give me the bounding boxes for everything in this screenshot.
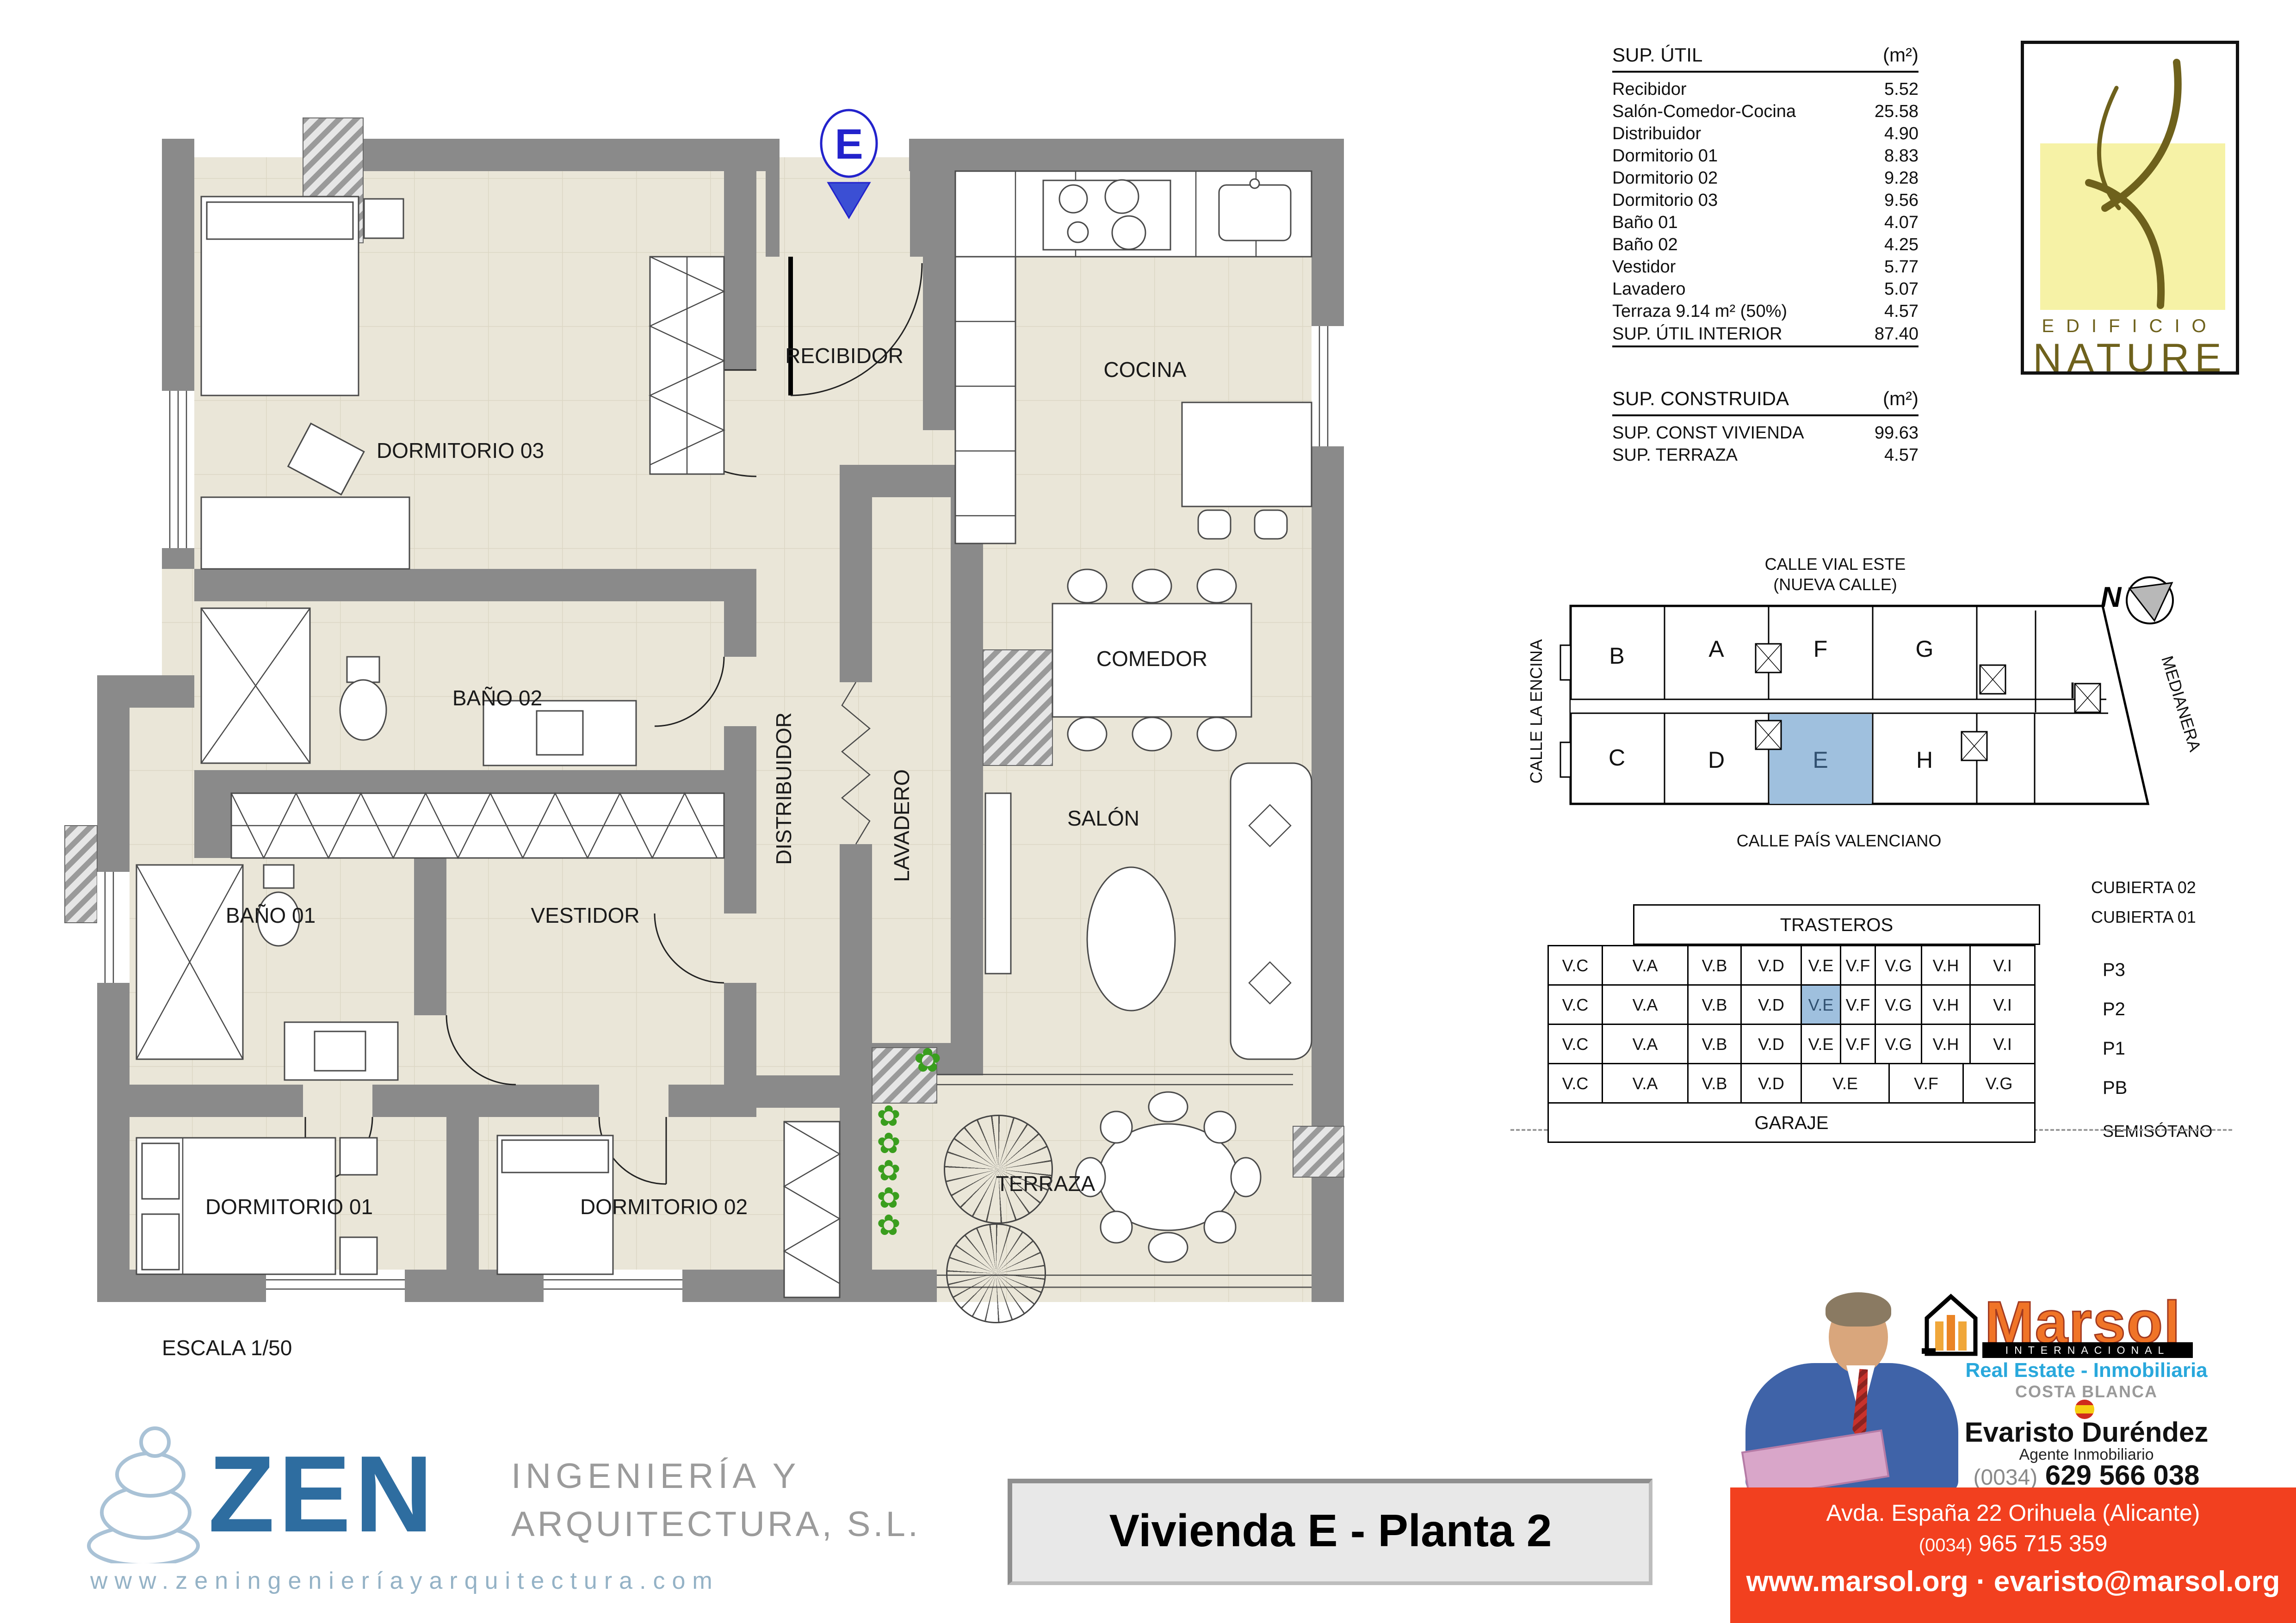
total-value: 87.40 [1875,322,1918,346]
row-label: Recibidor [1612,78,1687,100]
stack-cell: V.A [1603,1024,1689,1064]
stack-cell: V.C [1547,1063,1603,1104]
stack-row-p3: V.C V.A V.B V.D V.E V.F V.G V.H V.I [1547,945,2036,986]
table-row: Distribuidor4.90 [1612,123,1918,145]
stack-row-p2: V.C V.A V.B V.D V.E V.F V.G V.H V.I [1547,984,2036,1025]
stack-cell: V.D [1742,1024,1802,1064]
table-row: Recibidor5.52 [1612,78,1918,100]
row-value: 4.57 [1884,444,1918,466]
nature-edificio-text: EDIFICIO [2024,316,2236,337]
marsol-banner: Avda. España 22 Orihuela (Alicante) (003… [1730,1487,2296,1623]
plant-strip: ✿ ✿ ✿ ✿ ✿ [877,1103,901,1239]
stack-cell: V.H [1922,984,1971,1025]
stack-cell: V.F [1890,1063,1964,1104]
unit-f: F [1813,636,1828,662]
stack-cell: V.G [1876,984,1922,1025]
garaje-box: GARAJE [1547,1102,2036,1143]
table-row: Terraza 9.14 m² (50%)4.57 [1612,300,1918,322]
stack-cell: V.G [1964,1063,2036,1104]
label-cocina: COCINA [1104,358,1187,382]
row-value: 5.07 [1884,278,1918,300]
stack-cell: V.F [1841,945,1876,986]
row-label: Dormitorio 01 [1612,145,1718,167]
row-label: Dormitorio 02 [1612,167,1718,189]
stack-cell: V.E [1802,945,1841,986]
unit-c: C [1609,745,1625,771]
marsol-address: Avda. España 22 Orihuela (Alicante) [1730,1500,2296,1526]
label-vestidor: VESTIDOR [531,903,639,927]
table-row: SUP. CONST VIVIENDA99.63 [1612,422,1918,444]
stack-cell: V.E [1802,1063,1890,1104]
stack-cell: V.D [1742,945,1802,986]
stack-cell: V.C [1547,984,1603,1025]
table-row: Dormitorio 029.28 [1612,167,1918,189]
north-label: N [2101,581,2122,613]
row-value: 99.63 [1875,422,1918,444]
sup-util-unit: (m²) [1883,44,1918,66]
scale-label: ESCALA 1/50 [162,1336,292,1360]
table-row: Salón-Comedor-Cocina25.58 [1612,100,1918,123]
sup-cons-title: SUP. CONSTRUIDA [1612,388,1789,410]
table-row: Baño 014.07 [1612,211,1918,234]
site-plan: B A F G I C D E H CALLE VIAL ESTE (NUEVA… [1524,546,2200,870]
floor-plan: E RECIBIDOR COCINA DORMITORIO 03 BAÑO 02… [44,104,1418,1376]
zen-line1: INGENIERÍA Y [511,1456,800,1496]
stack-cell: V.G [1876,945,1922,986]
plant-icon: ✿ [877,1212,901,1240]
cubierta-01-label: CUBIERTA 01 [2091,907,2196,927]
row-value: 4.07 [1884,211,1918,234]
label-lavadero: LAVADERO [890,769,914,882]
stack-cell: V.B [1689,1063,1742,1104]
plant-icon: ✿ [877,1103,901,1130]
table-row: Baño 024.25 [1612,234,1918,256]
stack-cell: V.A [1603,1063,1689,1104]
unit-h: H [1916,747,1933,773]
table-row: Dormitorio 039.56 [1612,189,1918,211]
row-label: Terraza 9.14 m² (50%) [1612,300,1787,322]
site-outline [1560,606,2148,804]
label-recibidor: RECIBIDOR [785,344,904,368]
sup-construida-table: SUP. CONSTRUIDA (m²) SUP. CONST VIVIENDA… [1612,388,1918,466]
unit-a: A [1708,636,1724,662]
plant-icon: ✿ [877,1130,901,1158]
north-compass: N [2101,577,2173,623]
plant-icon: ✿ [877,1185,901,1212]
row-value: 4.25 [1884,234,1918,256]
label-distribuidor: DISTRIBUIDOR [772,712,796,865]
row-label: Salón-Comedor-Cocina [1612,100,1796,123]
stack-cell: V.F [1841,1024,1876,1064]
zen-line2: ARQUITECTURA, S.L. [511,1504,921,1544]
semisotano-label: SEMISÓTANO [2103,1122,2212,1141]
agent-phone: (0034) 629 566 038 [1925,1459,2248,1491]
label-dormitorio01: DORMITORIO 01 [205,1195,373,1219]
label-comedor: COMEDOR [1096,647,1207,671]
stack-cell: V.B [1689,945,1742,986]
stack-cell: V.E [1802,1024,1841,1064]
street-right: MEDIANERA [2158,654,2200,754]
stack-cell: V.G [1876,1024,1922,1064]
stack-cell: V.F [1841,984,1876,1025]
row-label: Dormitorio 03 [1612,189,1718,211]
stack-cell: V.I [1971,945,2036,986]
row-label: Distribuidor [1612,123,1701,145]
table-row: SUP. TERRAZA4.57 [1612,444,1918,466]
row-label: Baño 02 [1612,234,1678,256]
trasteros-box: TRASTEROS [1633,904,2040,945]
label-bano02: BAÑO 02 [452,686,542,710]
marsol-internacional-bar: INTERNACIONAL [1982,1342,2193,1358]
agent-name: Evaristo Duréndez [1925,1416,2248,1448]
stack-cell: V.D [1742,984,1802,1025]
plant-icon: ✿ [914,1041,941,1080]
marsol-tagline: Real Estate - Inmobiliaria [1925,1359,2248,1382]
plan-sheet: E RECIBIDOR COCINA DORMITORIO 03 BAÑO 02… [0,0,2296,1623]
sup-util-title: SUP. ÚTIL [1612,44,1702,66]
row-value: 9.28 [1884,167,1918,189]
stack-cell: V.A [1603,984,1689,1025]
stack-cell: V.H [1922,1024,1971,1064]
phone-number: 629 566 038 [2045,1460,2200,1491]
sup-util-table: SUP. ÚTIL (m²) Recibidor5.52 Salón-Comed… [1612,44,1918,347]
stack-row-pb: V.C V.A V.B V.D V.E V.F V.G [1547,1063,2036,1104]
stack-cell-highlighted: V.E [1802,984,1841,1025]
marsol-phone2: (0034) 965 715 359 [1730,1530,2296,1557]
entrance-letter: E [835,121,863,168]
row-value: 25.58 [1875,100,1918,123]
street-top-1: CALLE VIAL ESTE [1765,555,1906,574]
marsol-region: COSTA BLANCA [1925,1382,2248,1401]
stack-cell: V.B [1689,1024,1742,1064]
stack-row-p1: V.C V.A V.B V.D V.E V.F V.G V.H V.I [1547,1024,2036,1064]
row-value: 5.77 [1884,256,1918,278]
floor-label-p3: P3 [2103,960,2125,981]
street-top-2: (NUEVA CALLE) [1773,575,1897,594]
stack-cell: V.I [1971,1024,2036,1064]
label-salon: SALÓN [1067,806,1139,830]
phone2-number: 965 715 359 [1979,1530,2107,1556]
row-label: Lavadero [1612,278,1685,300]
label-bano01: BAÑO 01 [226,903,316,927]
row-value: 4.57 [1884,300,1918,322]
floor-label-p2: P2 [2103,999,2125,1020]
row-label: Baño 01 [1612,211,1678,234]
row-value: 8.83 [1884,145,1918,167]
street-bottom: CALLE PAÍS VALENCIANO [1737,831,1942,850]
row-value: 5.52 [1884,78,1918,100]
zen-web: www.zeningenieríayarquitectura.com [90,1567,719,1595]
stack-cell: V.H [1922,945,1971,986]
row-label: Vestidor [1612,256,1676,278]
marsol-web: www.marsol.org · evaristo@marsol.org [1730,1565,2296,1598]
table-row: Vestidor5.77 [1612,256,1918,278]
total-label: SUP. ÚTIL INTERIOR [1612,322,1782,346]
stack-cell: V.B [1689,984,1742,1025]
floor-label-p1: P1 [2103,1038,2125,1059]
street-left: CALLE LA ENCINA [1527,639,1546,784]
sheet-title: Vivienda E - Planta 2 [1008,1479,1652,1585]
stack-cell: V.D [1742,1063,1802,1104]
unit-b: B [1609,643,1624,669]
unit-d: D [1708,747,1725,773]
zen-brand: ZEN [208,1443,437,1545]
nature-logo: EDIFICIO NATURE [2021,41,2239,375]
cubierta-02-label: CUBIERTA 02 [2091,878,2196,897]
marsol-house-icon [1920,1293,1982,1358]
nature-name-text: NATURE [2024,335,2236,381]
label-dormitorio02: DORMITORIO 02 [580,1195,748,1219]
parasol-icon [946,1223,1046,1323]
plant-icon: ✿ [877,1158,901,1185]
zen-stones-icon [86,1425,206,1563]
stack-cell: V.C [1547,945,1603,986]
stack-cell: V.A [1603,945,1689,986]
row-label: SUP. TERRAZA [1612,444,1738,466]
phone-prefix: (0034) [1973,1465,2037,1490]
phone2-prefix: (0034) [1919,1535,1973,1555]
row-value: 4.90 [1884,123,1918,145]
sup-cons-unit: (m²) [1883,388,1918,410]
stack-cell: V.C [1547,1024,1603,1064]
table-row: Lavadero5.07 [1612,278,1918,300]
row-label: SUP. CONST VIVIENDA [1612,422,1804,444]
agent-hair [1826,1292,1891,1327]
row-value: 9.56 [1884,189,1918,211]
unit-i: I [2069,678,2076,704]
table-row: Dormitorio 018.83 [1612,145,1918,167]
stack-cell: V.I [1971,984,2036,1025]
floor-label-pb: PB [2103,1078,2127,1098]
unit-e-highlighted: E [1813,747,1828,773]
label-dormitorio03: DORMITORIO 03 [377,438,544,463]
unit-g: G [1916,636,1934,662]
parasol-icon [944,1115,1053,1224]
table-total-row: SUP. ÚTIL INTERIOR87.40 [1612,322,1918,347]
